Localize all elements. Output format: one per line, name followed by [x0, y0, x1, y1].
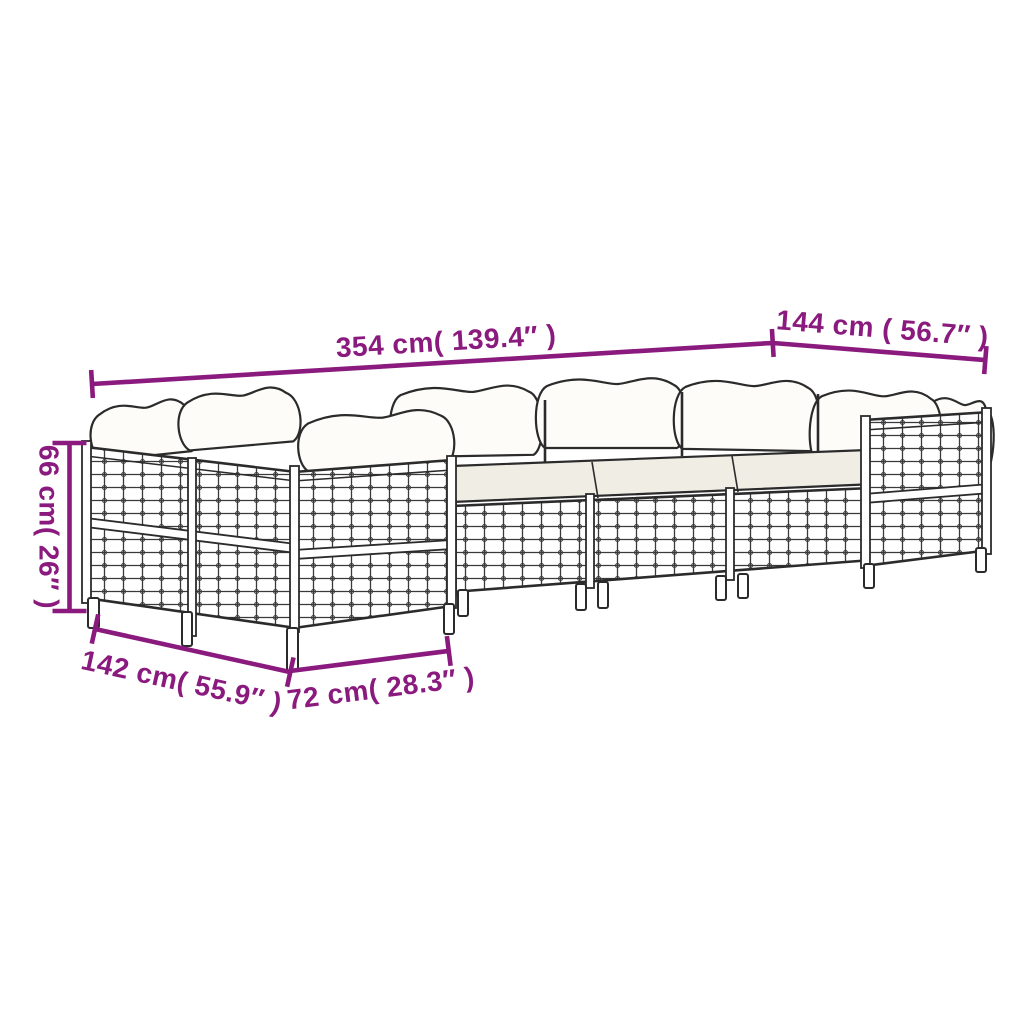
leg: [716, 576, 726, 600]
frame-post: [861, 416, 870, 568]
dimension-label-height: 66 cm( 26″ ): [34, 445, 65, 609]
frame-post: [447, 456, 456, 608]
leg: [444, 604, 454, 634]
frame-post: [586, 494, 594, 588]
dimension-right-section: 144 cm ( 56.7″ ): [772, 304, 990, 374]
dimension-height: 66 cm( 26″ ): [34, 443, 87, 611]
back-cushion: [176, 385, 303, 451]
frame-post: [982, 408, 991, 554]
leg: [864, 564, 874, 588]
product-diagram-canvas: 354 cm( 139.4″ ) 144 cm ( 56.7″ ) 66 cm(…: [0, 0, 1024, 1024]
leg: [182, 612, 192, 646]
base-lattice-panel: [452, 488, 872, 592]
frame-post: [82, 441, 91, 603]
back-cushion: [673, 379, 820, 451]
leg: [576, 584, 586, 610]
back-cushion: [536, 378, 686, 448]
right-corner-armrest: [861, 408, 991, 588]
middle-base: [448, 488, 872, 616]
leg: [458, 590, 468, 616]
dimension-diagram-svg: 354 cm( 139.4″ ) 144 cm ( 56.7″ ) 66 cm(…: [0, 0, 1024, 1024]
frame-post: [188, 458, 196, 636]
leg: [738, 574, 748, 598]
frame-post: [726, 488, 734, 580]
furniture-line-drawing: [82, 378, 999, 671]
dimension-label-left-section: 142 cm( 55.9″ ): [79, 644, 285, 718]
dimension-module-width: 72 cm( 28.3″ ): [282, 633, 476, 715]
leg: [976, 548, 986, 572]
leg: [598, 582, 608, 608]
frame-post: [290, 466, 299, 632]
